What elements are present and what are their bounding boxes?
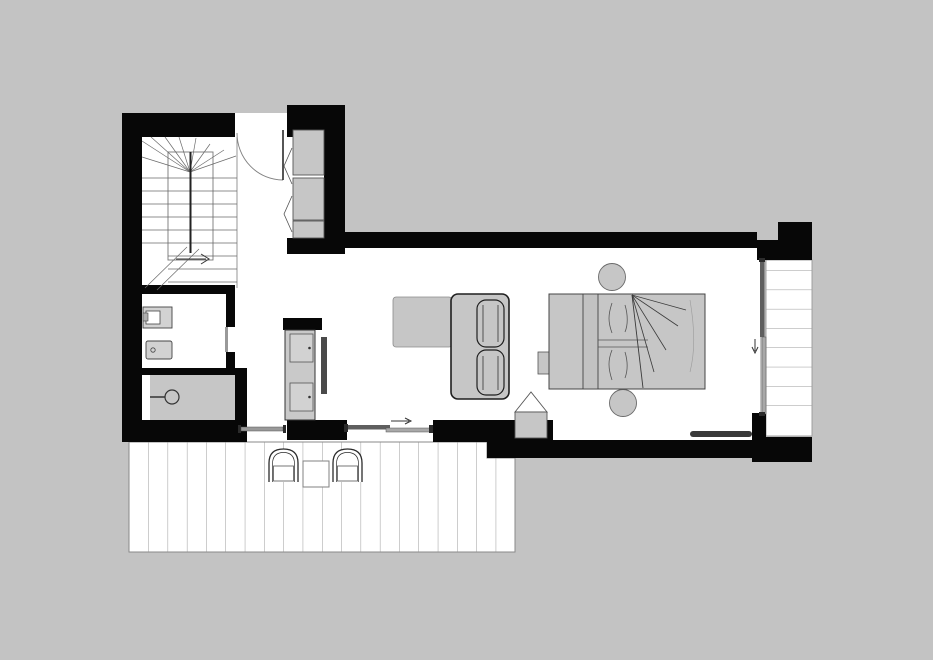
deck-chair <box>333 449 362 482</box>
deck-planks <box>129 442 515 552</box>
wall-hall-right <box>324 128 345 254</box>
wall-under-wardrobe <box>287 238 324 254</box>
bathroom-door-leaf <box>225 327 228 352</box>
kitchen-handle <box>308 396 311 399</box>
wall-top <box>122 113 235 137</box>
balcony-planks <box>766 260 812 415</box>
toilet-flush <box>151 348 155 352</box>
shower-head <box>165 390 179 404</box>
sofa-chaise <box>393 297 452 347</box>
wall-chimney <box>778 222 812 245</box>
wall-bath-top <box>142 285 235 294</box>
wall-se-corner <box>752 437 812 462</box>
deck-table <box>303 461 329 487</box>
deck <box>129 442 515 552</box>
sofa-cushion <box>477 350 504 395</box>
balcony <box>766 260 812 436</box>
floor-plan-canvas <box>0 0 933 660</box>
round-side-table <box>599 264 626 291</box>
wall-kitchen-bottom <box>287 420 347 440</box>
wall-living-top <box>345 232 757 248</box>
sofa-cushion <box>477 300 504 347</box>
double-bed <box>549 294 705 389</box>
wall-shower-top <box>142 368 235 375</box>
doormat <box>690 431 752 437</box>
wall-kitchen-stub <box>283 318 322 330</box>
wall-sw <box>122 420 238 442</box>
wall-bath-right-upper <box>226 285 235 327</box>
shower-room <box>150 375 235 420</box>
round-side-table <box>610 390 637 417</box>
bed-base <box>549 294 705 389</box>
washbasin-tap <box>143 313 148 321</box>
wall-bath-right-lower <box>226 352 235 368</box>
bed-headboard <box>583 294 598 389</box>
deck-chair <box>269 449 298 482</box>
wall-left <box>122 113 142 442</box>
toilet <box>146 341 172 359</box>
kitchen-counter-edge <box>321 337 327 394</box>
kitchen-handle <box>308 347 311 350</box>
